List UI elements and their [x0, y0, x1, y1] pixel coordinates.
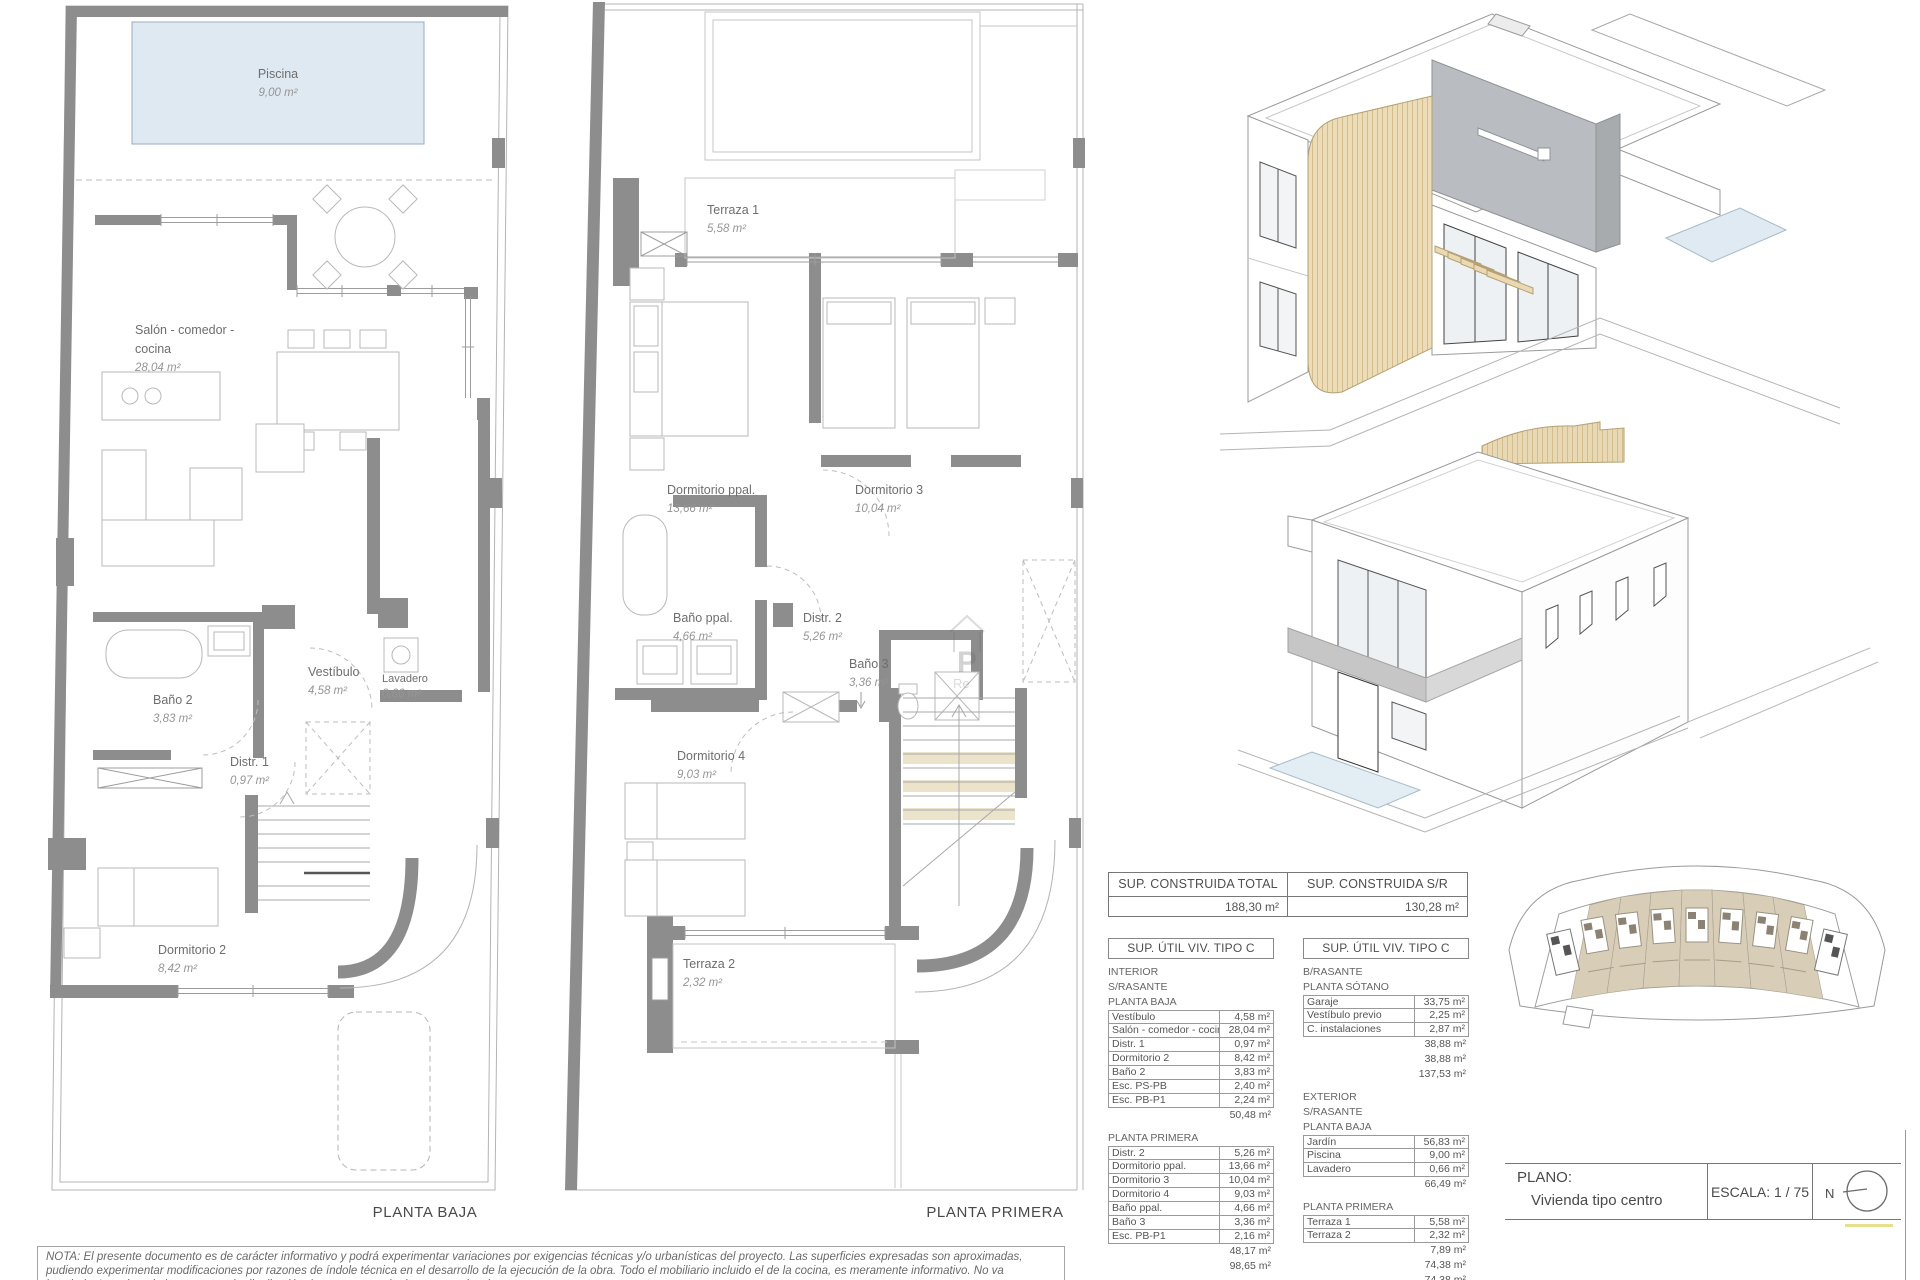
table-row: Terraza 15,58 m²	[1303, 1215, 1469, 1229]
room-label: Dormitorio 2	[158, 943, 226, 957]
roof-outline	[705, 12, 1077, 160]
furniture	[64, 185, 418, 958]
row-label: Piscina	[1304, 1149, 1415, 1162]
row-value: 2,24 m²	[1220, 1094, 1273, 1107]
util-table-header: SUP. ÚTIL VIV. TIPO C	[1303, 938, 1469, 959]
room-label: Distr. 1	[230, 755, 269, 769]
room-label: Piscina	[258, 67, 298, 81]
table-row: Esc. PB-P12,24 m²	[1108, 1094, 1274, 1108]
room-area: 0,66 m²	[382, 688, 422, 700]
section-label: S/RASANTE	[1108, 980, 1274, 995]
room-label: Salón - comedor -	[135, 323, 234, 337]
table-row: Esc. PS-PB2,40 m²	[1108, 1080, 1274, 1094]
escala-label: ESCALA:	[1711, 1184, 1770, 1200]
row-label: Esc. PS-PB	[1109, 1080, 1220, 1093]
row-label: Baño ppal.	[1109, 1202, 1220, 1215]
floor-plan-planta-primera: P Re Terraza 1 5,58 m² Dormitorio ppal. …	[555, 0, 1095, 1240]
row-label: Baño 2	[1109, 1066, 1220, 1079]
row-value: 2,32 m²	[1415, 1229, 1468, 1242]
row-label: Terraza 1	[1304, 1216, 1415, 1228]
curved-wall	[917, 848, 1027, 966]
summary-table: SUP. CONSTRUIDA TOTAL 188,30 m² SUP. CON…	[1108, 872, 1468, 917]
plan-title-baja: PLANTA BAJA	[340, 1204, 510, 1221]
table-row: Salón - comedor - cocina28,04 m²	[1108, 1024, 1274, 1038]
driveway	[338, 1012, 430, 1170]
room-area: 2,32 m²	[682, 977, 723, 989]
section-total: 48,17 m²	[1108, 1244, 1274, 1259]
room-label: Baño ppal.	[673, 611, 733, 625]
room-area: 4,58 m²	[308, 685, 348, 697]
summary-header: SUP. CONSTRUIDA TOTAL	[1108, 872, 1288, 897]
room-area: 0,97 m²	[230, 775, 270, 787]
summary-value: 130,28 m²	[1288, 897, 1468, 917]
table-row: Baño 23,83 m²	[1108, 1066, 1274, 1080]
section-total: 38,88 m²	[1303, 1052, 1469, 1067]
room-label: Baño 3	[849, 657, 889, 671]
floor-plan-planta-baja: Piscina 9,00 m² Salón - comedor - cocina…	[40, 0, 540, 1240]
row-value: 5,58 m²	[1415, 1216, 1468, 1229]
room-area: 8,42 m²	[158, 963, 198, 975]
section-label: S/RASANTE	[1303, 1105, 1469, 1120]
plano-label: PLANO:	[1505, 1164, 1707, 1186]
row-value: 33,75 m²	[1415, 996, 1468, 1009]
row-value: 0,66 m²	[1415, 1163, 1468, 1176]
table-row: C. instalaciones2,87 m²	[1303, 1023, 1469, 1037]
row-value: 3,83 m²	[1220, 1066, 1273, 1079]
row-value: 9,03 m²	[1220, 1188, 1273, 1201]
table-row: Dormitorio 49,03 m²	[1108, 1188, 1274, 1202]
escala-cell: ESCALA: 1 / 75	[1707, 1164, 1813, 1219]
row-value: 2,87 m²	[1415, 1023, 1468, 1036]
watermark-text: Re	[953, 676, 970, 691]
room-area: 9,00 m²	[259, 87, 299, 99]
room-label: Terraza 1	[707, 203, 759, 217]
north-compass-icon: N	[1813, 1164, 1901, 1219]
table-row: Vestíbulo previo2,25 m²	[1303, 1009, 1469, 1023]
row-value: 8,42 m²	[1220, 1052, 1273, 1065]
room-label: Lavadero	[382, 673, 428, 685]
row-label: Dormitorio ppal.	[1109, 1160, 1220, 1173]
north-label: N	[1825, 1186, 1834, 1201]
row-value: 3,36 m²	[1220, 1216, 1273, 1229]
section-total: 7,89 m²	[1303, 1243, 1469, 1258]
table-row: Terraza 22,32 m²	[1303, 1229, 1469, 1243]
room-label: Distr. 2	[803, 611, 842, 625]
row-label: Salón - comedor - cocina	[1109, 1024, 1220, 1037]
section-label: PLANTA SÓTANO	[1303, 980, 1469, 995]
stairs	[903, 560, 1075, 906]
row-value: 13,66 m²	[1220, 1160, 1273, 1173]
row-label: Distr. 2	[1109, 1147, 1220, 1159]
room-area: 10,04 m²	[855, 503, 902, 515]
escala-value: 1 / 75	[1774, 1184, 1809, 1200]
roof-slat-screen	[1482, 422, 1624, 464]
row-label: Garaje	[1304, 996, 1415, 1008]
row-label: Vestíbulo	[1109, 1011, 1220, 1023]
row-label: Esc. PB-P1	[1109, 1094, 1220, 1107]
summary-header: SUP. CONSTRUIDA S/R	[1288, 872, 1468, 897]
table-row: Dormitorio ppal.13,66 m²	[1108, 1160, 1274, 1174]
section-total: 137,53 m²	[1303, 1067, 1469, 1082]
room-area: 3,83 m²	[153, 713, 193, 725]
room-area: 28,04 m²	[134, 362, 182, 374]
render-lines	[1220, 14, 1840, 450]
section-total: 38,88 m²	[1303, 1037, 1469, 1052]
site-plan	[1497, 838, 1897, 1038]
table-row: Lavadero0,66 m²	[1303, 1163, 1469, 1177]
wood-slat-wall	[1308, 96, 1432, 393]
render-lines	[1238, 422, 1878, 832]
row-label: Dormitorio 2	[1109, 1052, 1220, 1065]
watermark-letter: P	[957, 646, 977, 679]
table-row: Jardín56,83 m²	[1303, 1135, 1469, 1149]
room-label: Vestíbulo	[308, 665, 359, 679]
compass-cell: N	[1813, 1164, 1901, 1219]
section-total: 50,48 m²	[1108, 1108, 1274, 1123]
row-value: 2,40 m²	[1220, 1080, 1273, 1093]
row-value: 4,58 m²	[1220, 1011, 1273, 1024]
accent-mark	[1845, 1224, 1893, 1227]
section-label: B/RASANTE	[1303, 965, 1469, 980]
section-label: INTERIOR	[1108, 965, 1274, 980]
table-row: Garaje33,75 m²	[1303, 995, 1469, 1009]
section-label: PLANTA BAJA	[1108, 995, 1274, 1010]
row-label: Jardín	[1304, 1136, 1415, 1148]
page-border-line	[1905, 1130, 1906, 1280]
row-value: 28,04 m²	[1220, 1024, 1273, 1037]
row-value: 0,97 m²	[1220, 1038, 1273, 1051]
row-value: 10,04 m²	[1220, 1174, 1273, 1187]
room-area: 9,03 m²	[677, 769, 717, 781]
room-label: Dormitorio 4	[677, 749, 745, 763]
row-label: Esc. PB-P1	[1109, 1230, 1220, 1243]
room-area: 5,26 m²	[803, 631, 843, 643]
section-label: EXTERIOR	[1303, 1090, 1469, 1105]
room-area: 3,36 m²	[849, 677, 889, 689]
table-row: Dormitorio 28,42 m²	[1108, 1052, 1274, 1066]
section-total: 74,38 m²	[1303, 1258, 1469, 1273]
pool	[132, 22, 424, 144]
summary-value: 188,30 m²	[1108, 897, 1288, 917]
room-area: 13,66 m²	[667, 503, 714, 515]
table-row: Baño ppal.4,66 m²	[1108, 1202, 1274, 1216]
site-units	[1571, 890, 1823, 999]
row-value: 9,00 m²	[1415, 1149, 1468, 1162]
table-row: Distr. 10,97 m²	[1108, 1038, 1274, 1052]
table-row: Vestíbulo4,58 m²	[1108, 1010, 1274, 1024]
stairs	[258, 722, 370, 900]
row-label: Distr. 1	[1109, 1038, 1220, 1051]
title-block: PLANO: Vivienda tipo centro ESCALA: 1 / …	[1505, 1163, 1901, 1220]
row-label: Terraza 2	[1304, 1229, 1415, 1242]
room-label: Dormitorio 3	[855, 483, 923, 497]
section-label: PLANTA PRIMERA	[1108, 1131, 1274, 1146]
util-table-left: SUP. ÚTIL VIV. TIPO C INTERIOR S/RASANTE…	[1108, 938, 1274, 1274]
room-area: 5,58 m²	[707, 223, 747, 235]
row-value: 2,16 m²	[1220, 1230, 1273, 1243]
row-value: 4,66 m²	[1220, 1202, 1273, 1215]
row-label: Dormitorio 3	[1109, 1174, 1220, 1187]
table-row: Distr. 25,26 m²	[1108, 1146, 1274, 1160]
site-boundary	[52, 6, 508, 1190]
row-label: Dormitorio 4	[1109, 1188, 1220, 1201]
section-total: 74,38 m²	[1303, 1273, 1469, 1280]
room-label: Baño 2	[153, 693, 193, 707]
room-label: Terraza 2	[683, 957, 735, 971]
section-total: 98,65 m²	[1108, 1259, 1274, 1274]
row-label: C. instalaciones	[1304, 1023, 1415, 1036]
row-value: 2,25 m²	[1415, 1009, 1468, 1022]
row-label: Baño 3	[1109, 1216, 1220, 1229]
curved-wall	[338, 858, 412, 972]
row-label: Lavadero	[1304, 1163, 1415, 1176]
row-value: 5,26 m²	[1220, 1147, 1273, 1160]
section-total: 66,49 m²	[1303, 1177, 1469, 1192]
table-row: Baño 33,36 m²	[1108, 1216, 1274, 1230]
plano-value: Vivienda tipo centro	[1505, 1186, 1707, 1209]
table-row: Dormitorio 310,04 m²	[1108, 1174, 1274, 1188]
plan-title-primera: PLANTA PRIMERA	[905, 1204, 1085, 1221]
util-table-right: SUP. ÚTIL VIV. TIPO C B/RASANTE PLANTA S…	[1303, 938, 1469, 1280]
pool-3d	[1666, 208, 1786, 262]
table-row: Esc. PB-P12,16 m²	[1108, 1230, 1274, 1244]
section-label: PLANTA PRIMERA	[1303, 1200, 1469, 1215]
table-row: Piscina9,00 m²	[1303, 1149, 1469, 1163]
render-rear-view	[1230, 420, 1890, 840]
room-label: cocina	[135, 342, 171, 356]
nota-box: NOTA: El presente documento es de caráct…	[37, 1246, 1065, 1280]
room-area: 4,66 m²	[673, 631, 713, 643]
row-label: Vestíbulo previo	[1304, 1009, 1415, 1022]
row-value: 56,83 m²	[1415, 1136, 1468, 1149]
section-label: PLANTA BAJA	[1303, 1120, 1469, 1135]
plan-sheet: Piscina 9,00 m² Salón - comedor - cocina…	[0, 0, 1920, 1280]
room-label: Dormitorio ppal.	[667, 483, 755, 497]
util-table-header: SUP. ÚTIL VIV. TIPO C	[1108, 938, 1274, 959]
